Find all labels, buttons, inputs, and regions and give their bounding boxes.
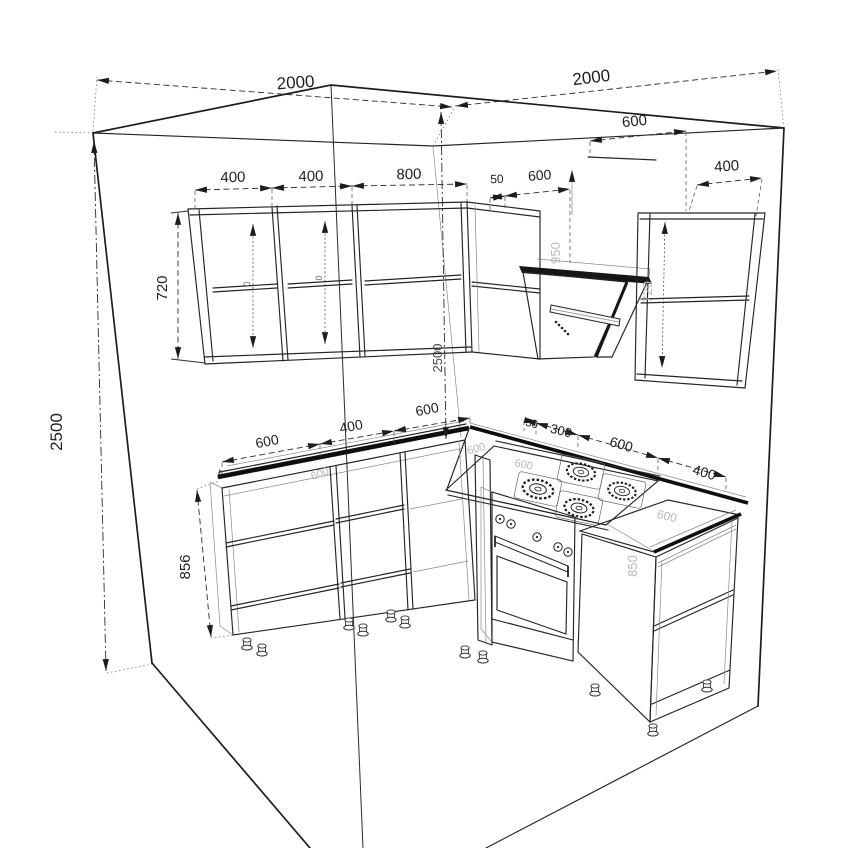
cabinet-foot — [386, 610, 396, 622]
dim-label-base-right-height-faint: 850 — [625, 555, 640, 577]
dim-label-upper-l3: 800 — [396, 166, 421, 183]
dim-hood-600 — [590, 131, 686, 141]
cabinet-foot — [344, 618, 354, 630]
dim-label-counter-l3: 600 — [414, 399, 440, 419]
dim-label-hood-width: 600 — [621, 112, 648, 132]
dim-label-shelf-mark-2: 0 — [314, 275, 324, 280]
cabinet-foot — [702, 680, 712, 692]
dim-label-wall-height: 2500 — [47, 413, 66, 451]
dim-upper-400b — [272, 186, 352, 188]
hood-control-buttons — [555, 321, 570, 336]
upper-left-right-edge — [461, 202, 472, 352]
corner-upper-bottom — [472, 352, 540, 359]
dim-label-upper-right: 400 — [714, 157, 740, 176]
dim-label-right-gap: 50 — [524, 417, 539, 432]
dim-wall-left-2000 — [97, 80, 452, 107]
right-upper-bottom-band — [635, 374, 745, 388]
cabinet-foot — [257, 644, 267, 656]
cabinet-foot — [590, 684, 600, 696]
dim-corner-gap-50 — [490, 196, 505, 198]
ceiling-inner-edge — [93, 128, 784, 146]
ceiling-outer-edge — [93, 85, 784, 133]
dim-label-base-right: 400 — [691, 461, 718, 483]
oven-handle — [495, 536, 568, 572]
base-bottom-1 — [231, 584, 339, 610]
right-wall-front-edge — [758, 128, 784, 706]
dim-label-counter-l2: 400 — [338, 416, 364, 436]
dim-label-wall-left-width: 2000 — [276, 72, 315, 94]
dim-label-depth-faint-1: 600 — [309, 465, 330, 483]
upper-cabinets-left — [188, 202, 472, 364]
dim-upper-right-400 — [697, 178, 762, 185]
right-base-shelf — [654, 590, 733, 631]
stove-right-counter-link — [607, 524, 655, 552]
base-divider-1 — [330, 466, 345, 619]
upper-left-top-band — [188, 202, 467, 215]
dim-label-right-filler: 300 — [549, 421, 574, 441]
drawing-canvas: 2000200025002500720400400800506006004006… — [0, 0, 852, 848]
dim-label-counter-l1: 600 — [254, 431, 280, 451]
base-shelf-1 — [226, 521, 334, 547]
cabinet-foot — [460, 646, 470, 658]
dim-upper-800 — [352, 184, 467, 186]
dim-label-depth-faint-4: 600 — [656, 507, 679, 526]
corner-upper-shelf — [472, 282, 540, 293]
dim-upper-400a — [195, 188, 272, 190]
dimension-lines — [55, 69, 784, 673]
dim-label-base-height: 856 — [177, 554, 194, 579]
left-wall-front-edge — [93, 133, 152, 663]
right-upper-inner-dim — [662, 222, 665, 368]
dim-label-corner-height: 2500 — [430, 344, 445, 373]
upper-divider-2 — [352, 205, 365, 357]
hood-flue-line — [588, 157, 656, 160]
right-backsplash-line — [470, 423, 746, 497]
oven-front — [492, 492, 575, 661]
gas-burner — [607, 480, 638, 502]
corner-panel-inner — [483, 458, 486, 642]
oven-knobs — [496, 515, 572, 556]
gas-burner — [521, 477, 555, 501]
dim-label-gap-corner: 50 — [490, 172, 504, 186]
dim-base-height-856 — [197, 490, 211, 637]
extension-lines — [195, 132, 762, 490]
upper-cabinet-corner — [467, 202, 540, 359]
upper-left-side — [188, 209, 213, 364]
cabinet-foot — [358, 624, 368, 636]
base-shelf-2 — [336, 505, 404, 523]
dim-wall-height-2500 — [94, 141, 106, 671]
room-outline — [93, 85, 784, 848]
cabinet-foot — [242, 638, 252, 650]
right-upper-top-band — [638, 213, 765, 219]
right-base-inner-walls — [656, 521, 732, 716]
right-floor-edge — [486, 706, 758, 848]
dim-corner-upper-600 — [505, 189, 570, 196]
dim-label-shelf-mark-1: 0 — [242, 281, 252, 286]
corner-upper-top — [467, 202, 540, 217]
corner-base-panel — [460, 455, 492, 663]
hood-handle-line — [551, 309, 619, 322]
left-floor-edge — [152, 663, 310, 848]
hood-top-rim — [519, 266, 652, 284]
gas-burner — [563, 497, 595, 520]
cabinet-foot — [400, 616, 410, 628]
upper-shelf-3 — [365, 275, 461, 285]
dim-label-upper-right-height-faint: 720 — [640, 281, 655, 303]
corner-base-shelves — [410, 499, 468, 572]
dim-wall-right-2000 — [456, 71, 777, 106]
projection-lines — [55, 69, 784, 673]
base-divider-2 — [400, 452, 413, 610]
kitchen-technical-drawing: 2000200025002500720400400800506006004006… — [0, 0, 852, 848]
right-upper-shelf — [641, 296, 749, 303]
cabinet-foot — [478, 651, 488, 663]
dim-label-hood-height-faint: 950 — [548, 242, 563, 264]
dim-label-stove-width: 600 — [608, 433, 635, 455]
cabinet-foot — [648, 724, 658, 736]
dim-label-upper-l1: 400 — [220, 169, 245, 186]
upper-divider-1 — [272, 206, 288, 361]
dim-label-upper-l2: 400 — [298, 168, 323, 185]
right-base-bottom — [652, 670, 730, 704]
base-left-side-panel — [210, 482, 233, 635]
height-ticks-720 — [171, 211, 205, 363]
corner-upper-inner-wall — [475, 205, 479, 352]
dim-label-upper-corner: 600 — [527, 166, 552, 184]
dim-label-depth-faint-2: 600 — [466, 441, 487, 457]
gas-burner — [565, 461, 596, 483]
wall-corner-line — [433, 147, 461, 437]
dim-label-wall-right-width: 2000 — [571, 66, 611, 89]
dim-label-upper-height: 720 — [154, 275, 171, 300]
dim-label-depth-faint-3: 600 — [513, 457, 533, 473]
